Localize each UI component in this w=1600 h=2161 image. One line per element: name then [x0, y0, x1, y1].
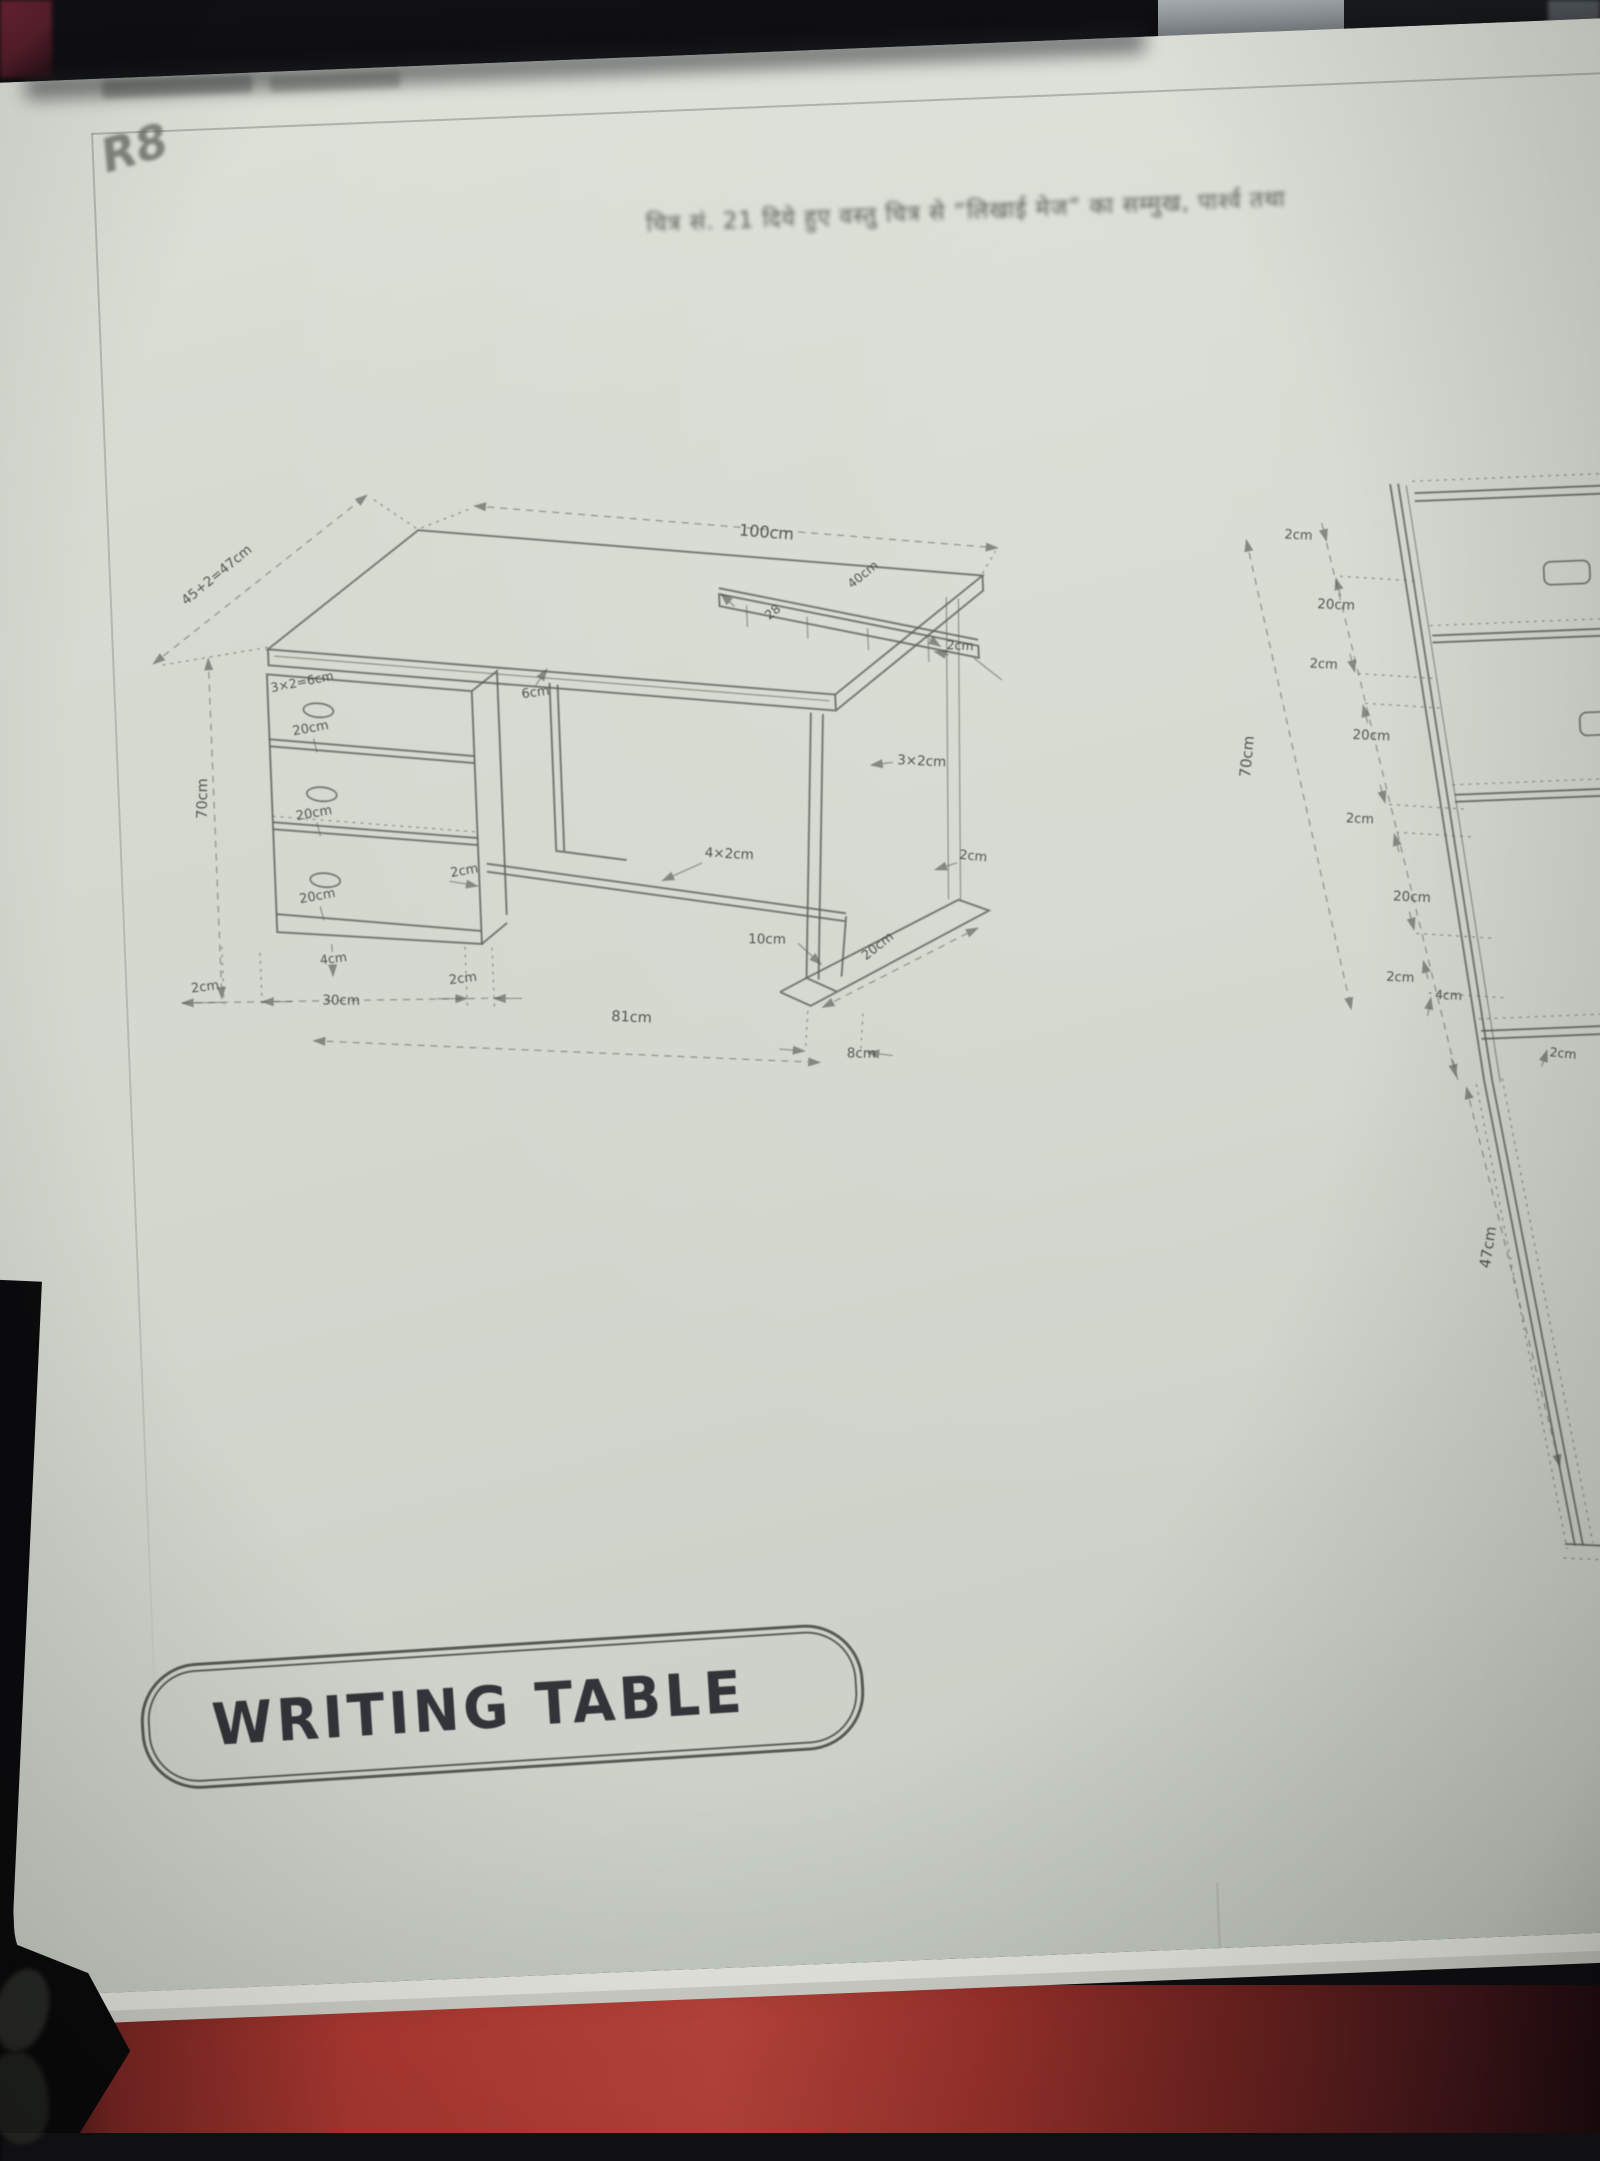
dim-top-length: 100cm [738, 520, 794, 543]
stretcher [487, 849, 849, 990]
leg [1484, 1078, 1583, 1549]
side-dim-top-thickness: 2cm [1549, 1044, 1577, 1062]
leader-2cm-foot [935, 863, 957, 870]
iso-drawing-svg: 100cm 45+2=47cm 70cm 3×2=6cm 20cm 20cm 2… [141, 452, 1087, 1158]
dim-pedestal-width: 30cm [322, 992, 360, 1008]
dim-apron: 6cm [521, 684, 551, 702]
bottom-rail [1481, 1023, 1600, 1039]
dim-drawer1: 20cm [291, 718, 329, 739]
tabletop-face [263, 508, 987, 718]
side-chain-6: 2cm [1386, 970, 1415, 986]
leader-2cm-side [449, 880, 477, 887]
dim-drawer2: 20cm [295, 803, 333, 824]
side-dim-leg-height: 47cm [1476, 1225, 1500, 1269]
dim-81cm-line [314, 1021, 820, 1083]
dim-kneehole: 81cm [611, 1009, 652, 1027]
rail [1432, 626, 1600, 642]
writing-table-label: WRITING TABLE [137, 1621, 867, 1792]
side-chain-3: 20cm [1352, 727, 1390, 745]
drawer-handle [1580, 711, 1600, 736]
dim-pedestal-top: 3×2=6cm [269, 668, 335, 695]
front-leg [796, 712, 834, 980]
dim-foot-length: 20cm [859, 929, 897, 963]
drawer-handle [310, 872, 341, 888]
writing-table-label-inner-border: WRITING TABLE [145, 1629, 861, 1785]
writing-table-title: WRITING TABLE [210, 1658, 747, 1759]
side-view-svg: 70cm 2cm 20cm 2cm 20cm 2cm 20cm 2cm 4cm … [1202, 461, 1600, 1609]
tabletop-thickness [266, 576, 988, 734]
side-chain-2: 2cm [1309, 657, 1338, 673]
dim-height: 70cm [195, 778, 211, 819]
dim-shelf-length: 40cm [844, 557, 881, 591]
book-cover-red [0, 1985, 1600, 2133]
leader-10cm [798, 942, 821, 965]
side-chain-5: 20cm [1393, 888, 1431, 906]
dim-side-gap: 2cm [449, 861, 479, 881]
leader-3x2 [871, 762, 893, 765]
page-crease [1216, 1882, 1222, 1990]
dim-foot-depth: 8cm [847, 1045, 876, 1061]
dim-foot-front: 10cm [748, 931, 786, 947]
background-red-corner [0, 0, 52, 78]
iso-drawing: 100cm 45+2=47cm 70cm 3×2=6cm 20cm 20cm 2… [141, 452, 1087, 1158]
dim-leg-gap: 2cm [958, 848, 987, 866]
drawer-handle [303, 702, 334, 718]
dim-top-depth: 45+2=47cm [178, 542, 255, 609]
side-chain-7: 4cm [1435, 987, 1463, 1003]
handwritten-mark: R8 [94, 113, 174, 184]
book-shelf [719, 578, 979, 668]
dim-base-right: 2cm [448, 970, 478, 988]
dim-stretcher: 4×2cm [704, 845, 754, 863]
side-chain-4: 2cm [1346, 811, 1375, 827]
dim-47cm-line [1466, 1084, 1559, 1469]
side-dim-height: 70cm [1236, 735, 1258, 779]
top-rail [1415, 483, 1600, 501]
dim-base-left: 2cm [190, 978, 220, 996]
drawer-handle [1543, 560, 1590, 585]
dim-depth-line [147, 495, 373, 664]
dim-leg-section: 3×2cm [897, 752, 947, 770]
dim-shelf-thickness: 2cm [946, 637, 974, 653]
rail [1455, 786, 1600, 802]
leader-4x2 [662, 863, 703, 881]
back-panel [549, 680, 626, 863]
dim-drawer3: 20cm [298, 886, 336, 907]
dim-height-line [208, 659, 222, 999]
drawer-handle [306, 786, 337, 802]
drawer-rails [270, 731, 482, 939]
side-chain-1: 20cm [1317, 596, 1355, 614]
side-chain-0: 2cm [1284, 527, 1313, 543]
dim-pedestal-bottom: 4cm [319, 949, 348, 967]
book-page: R8 चित्र सं. 21 दिये हुए वस्तु चित्र से … [0, 13, 1600, 1997]
hindi-caption: चित्र सं. 21 दिये हुए वस्तु चित्र से “लि… [645, 168, 1600, 239]
page-left-border [91, 133, 159, 1772]
side-view-drawing: 70cm 2cm 20cm 2cm 20cm 2cm 20cm 2cm 4cm … [1202, 461, 1600, 1609]
